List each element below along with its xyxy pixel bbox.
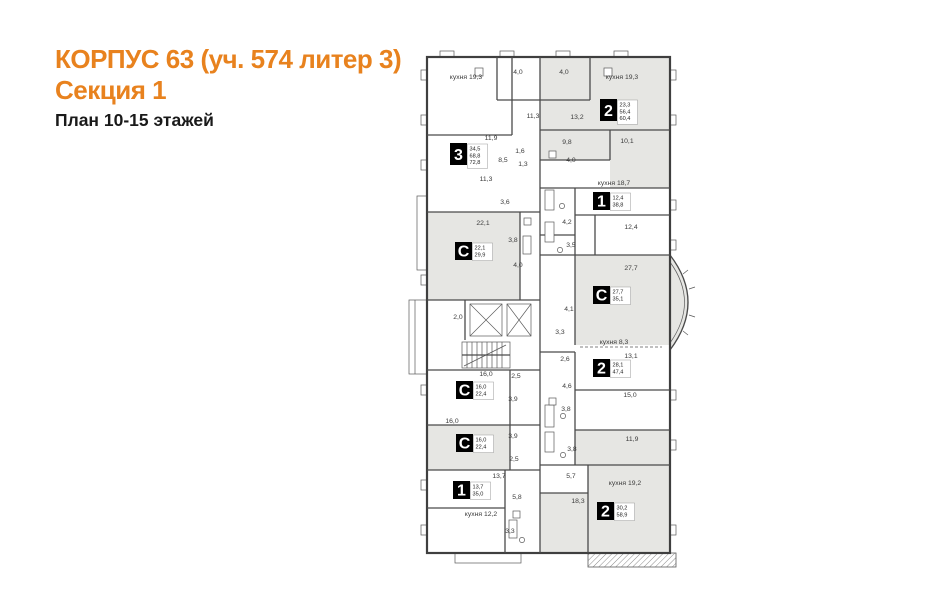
room-area-label: 5,8 [512,494,522,501]
room-area-label: 2,6 [560,356,570,363]
apartment-badge-С: С16,022,4 [456,381,494,400]
apartment-area-value: 60,4 [620,116,631,122]
apartment-area-value: 28,1 [613,363,624,369]
apartment-type-label: 2 [604,103,613,120]
apartment-type-label: 2 [601,504,610,521]
room-area-label: 4,1 [564,306,574,313]
elevator-core [470,304,531,336]
apartment-area-value: 12,4 [613,196,624,202]
apartment-type-label: 2 [597,361,606,378]
stairs [462,342,510,368]
floor-plan: кухня 19,34,04,0кухня 19,311,313,211,99,… [0,0,941,600]
room-area-label: 2,0 [453,314,463,321]
room-area-label: 8,5 [498,157,508,164]
apartment-area-value: 22,4 [476,391,487,397]
room-area-label: 13,7 [492,473,505,480]
apartment-badge-2: 223,356,460,4 [600,99,638,124]
room-area-label: 1,3 [518,161,528,168]
room-area-label: кухня 19,3 [606,74,639,81]
apartment-type-label: С [459,436,471,453]
apartment-area-value: 29,9 [475,252,486,258]
room-area-label: 3,8 [561,406,571,413]
room-area-label: 4,0 [513,262,523,269]
room-area-label: кухня 19,2 [609,480,642,487]
room-area-label: 18,3 [571,498,584,505]
room-area-label: 11,9 [485,135,498,142]
room-area-label: 3,3 [555,329,565,336]
apartment-area-value: 35,0 [473,491,484,497]
apartment-area-value: 16,0 [476,385,487,391]
room-area-label: кухня 12,2 [465,511,498,518]
room-area-label: 2,5 [509,456,519,463]
apartment-area-value: 27,7 [613,290,624,296]
apartment-area-value: 38,8 [613,202,624,208]
room-area-label: 13,1 [624,353,637,360]
room-area-label: 2,5 [511,373,521,380]
room-area-label: 11,3 [480,176,493,183]
apartment-badge-1: 113,735,0 [453,481,491,500]
room-area-label: 4,0 [513,69,523,76]
room-area-label: кухня 18,7 [598,180,631,187]
room-area-label: 4,0 [566,157,576,164]
apartment-area-value: 23,3 [620,103,631,109]
apartment-area-value: 56,4 [620,109,631,115]
apartment-area-value: 47,4 [613,369,624,375]
room-area-label: 3,5 [566,242,576,249]
room-area-label: 22,1 [476,220,489,227]
apartment-area-value: 13,7 [473,485,484,491]
apartment-area-value: 58,9 [617,512,628,518]
apartment-area-value: 68,8 [470,153,481,159]
shaded-rooms [427,57,688,553]
room-area-label: 3,9 [508,396,518,403]
room-area-label: 15,0 [623,392,636,399]
room-area-label: 4,6 [562,383,572,390]
apartment-area-value: 16,0 [476,438,487,444]
apartment-type-label: С [459,383,471,400]
room-area-label: 5,7 [566,473,576,480]
room-area-label: 12,4 [624,224,637,231]
room-area-label: 9,8 [562,139,572,146]
apartment-badge-С: С22,129,9 [455,242,493,261]
apartment-type-label: С [596,288,608,305]
apartment-area-value: 34,5 [470,147,481,153]
room-area-label: 11,3 [527,113,540,120]
room-area-label: 10,1 [620,138,633,145]
room-area-label: 4,0 [559,69,569,76]
apartment-badge-1: 112,438,8 [593,192,631,211]
apartment-badge-2: 228,147,4 [593,359,631,378]
apartment-type-label: 1 [597,194,606,211]
room-area-label: 3,9 [508,433,518,440]
apartment-area-value: 22,1 [475,246,486,252]
apartment-area-value: 22,4 [476,444,487,450]
apartment-badge-С: С27,735,1 [593,286,631,305]
room-area-label: 1,6 [515,148,525,155]
room-area-label: 4,2 [562,219,572,226]
room-area-label: 16,0 [479,371,492,378]
room-area-label: 13,2 [570,114,583,121]
room-area-label: 3,3 [505,528,515,535]
room-area-label: кухня 19,3 [450,74,483,81]
room-area-label: 3,8 [567,446,577,453]
apartment-badge-С: С16,022,4 [456,434,494,453]
apartment-type-label: С [458,244,470,261]
apartment-area-value: 30,2 [617,506,628,512]
apartment-type-label: 3 [454,147,463,164]
room-area-label: 3,8 [508,237,518,244]
apartment-area-value: 72,8 [470,160,481,166]
apartment-badge-3: 334,568,872,8 [450,143,488,168]
apartment-type-label: 1 [457,483,466,500]
room-area-label: кухня 8,3 [600,339,629,346]
apartment-area-value: 35,1 [613,296,624,302]
room-area-label: 16,0 [445,418,458,425]
room-area-label: 27,7 [624,265,637,272]
apartment-badge-2: 230,258,9 [597,502,635,521]
room-area-label: 11,9 [626,436,639,443]
room-area-label: 3,6 [500,199,510,206]
hatched-terrace [588,553,676,567]
